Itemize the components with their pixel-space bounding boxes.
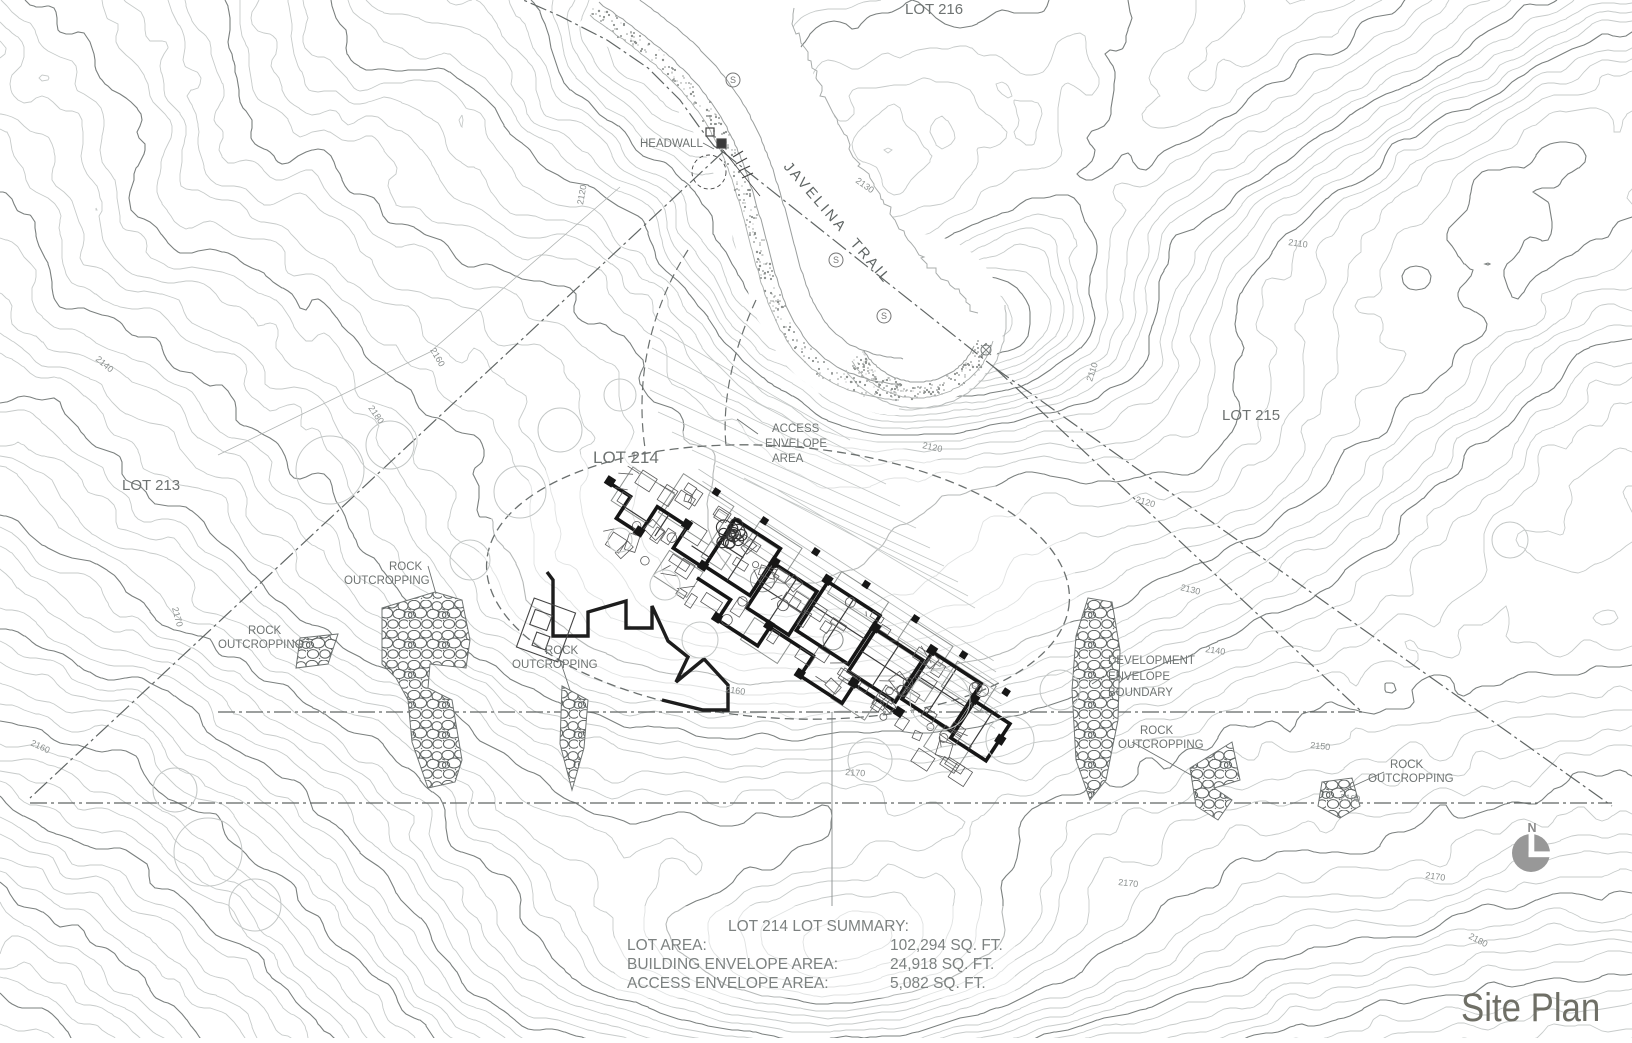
- svg-text:ROCK: ROCK: [389, 561, 423, 573]
- svg-text:OUTCROPPING: OUTCROPPING: [1118, 739, 1204, 751]
- svg-text:AREA: AREA: [772, 453, 804, 465]
- svg-text:102,294 SQ. FT.: 102,294 SQ. FT.: [890, 937, 1003, 954]
- svg-text:ROCK: ROCK: [545, 645, 579, 657]
- svg-text:2170: 2170: [1118, 877, 1139, 889]
- svg-text:ROCK: ROCK: [1390, 759, 1424, 771]
- svg-text:LOT 216: LOT 216: [905, 1, 963, 18]
- svg-text:2170: 2170: [845, 767, 866, 778]
- svg-text:DEVELOPMENT: DEVELOPMENT: [1108, 655, 1195, 667]
- svg-text:S: S: [730, 75, 736, 85]
- svg-text:LOT 215: LOT 215: [1222, 407, 1280, 424]
- svg-text:ROCK: ROCK: [1140, 725, 1174, 737]
- svg-text:LOT 213: LOT 213: [122, 477, 180, 494]
- svg-text:OUTCROPPING: OUTCROPPING: [512, 659, 598, 671]
- svg-text:OUTCROPPING: OUTCROPPING: [344, 575, 430, 587]
- svg-text:Site Plan: Site Plan: [1461, 985, 1600, 1030]
- svg-text:BOUNDARY: BOUNDARY: [1108, 687, 1173, 699]
- svg-text:LOT 214: LOT 214: [593, 448, 659, 467]
- svg-text:2150: 2150: [1310, 740, 1331, 752]
- svg-text:HEADWALL: HEADWALL: [640, 138, 703, 150]
- svg-text:ENVELOPE: ENVELOPE: [1108, 671, 1170, 683]
- svg-text:5,082 SQ. FT.: 5,082 SQ. FT.: [890, 975, 986, 992]
- svg-text:ACCESS ENVELOPE AREA:: ACCESS ENVELOPE AREA:: [627, 975, 829, 992]
- svg-text:2160: 2160: [1340, 792, 1361, 804]
- svg-text:LOT 214 LOT SUMMARY:: LOT 214 LOT SUMMARY:: [728, 918, 909, 935]
- svg-text:N: N: [1527, 821, 1536, 835]
- svg-text:LOT AREA:: LOT AREA:: [627, 937, 707, 954]
- svg-text:S: S: [833, 255, 839, 265]
- svg-text:ENVELOPE: ENVELOPE: [765, 438, 827, 450]
- svg-text:24,918 SQ. FT.: 24,918 SQ. FT.: [890, 956, 994, 973]
- svg-text:ACCESS: ACCESS: [772, 423, 820, 435]
- svg-text:BUILDING ENVELOPE AREA:: BUILDING ENVELOPE AREA:: [627, 956, 838, 973]
- svg-text:OUTCROPPING: OUTCROPPING: [218, 639, 304, 651]
- svg-text:OUTCROPPING: OUTCROPPING: [1368, 773, 1454, 785]
- svg-text:ROCK: ROCK: [248, 625, 282, 637]
- svg-text:S: S: [881, 311, 887, 321]
